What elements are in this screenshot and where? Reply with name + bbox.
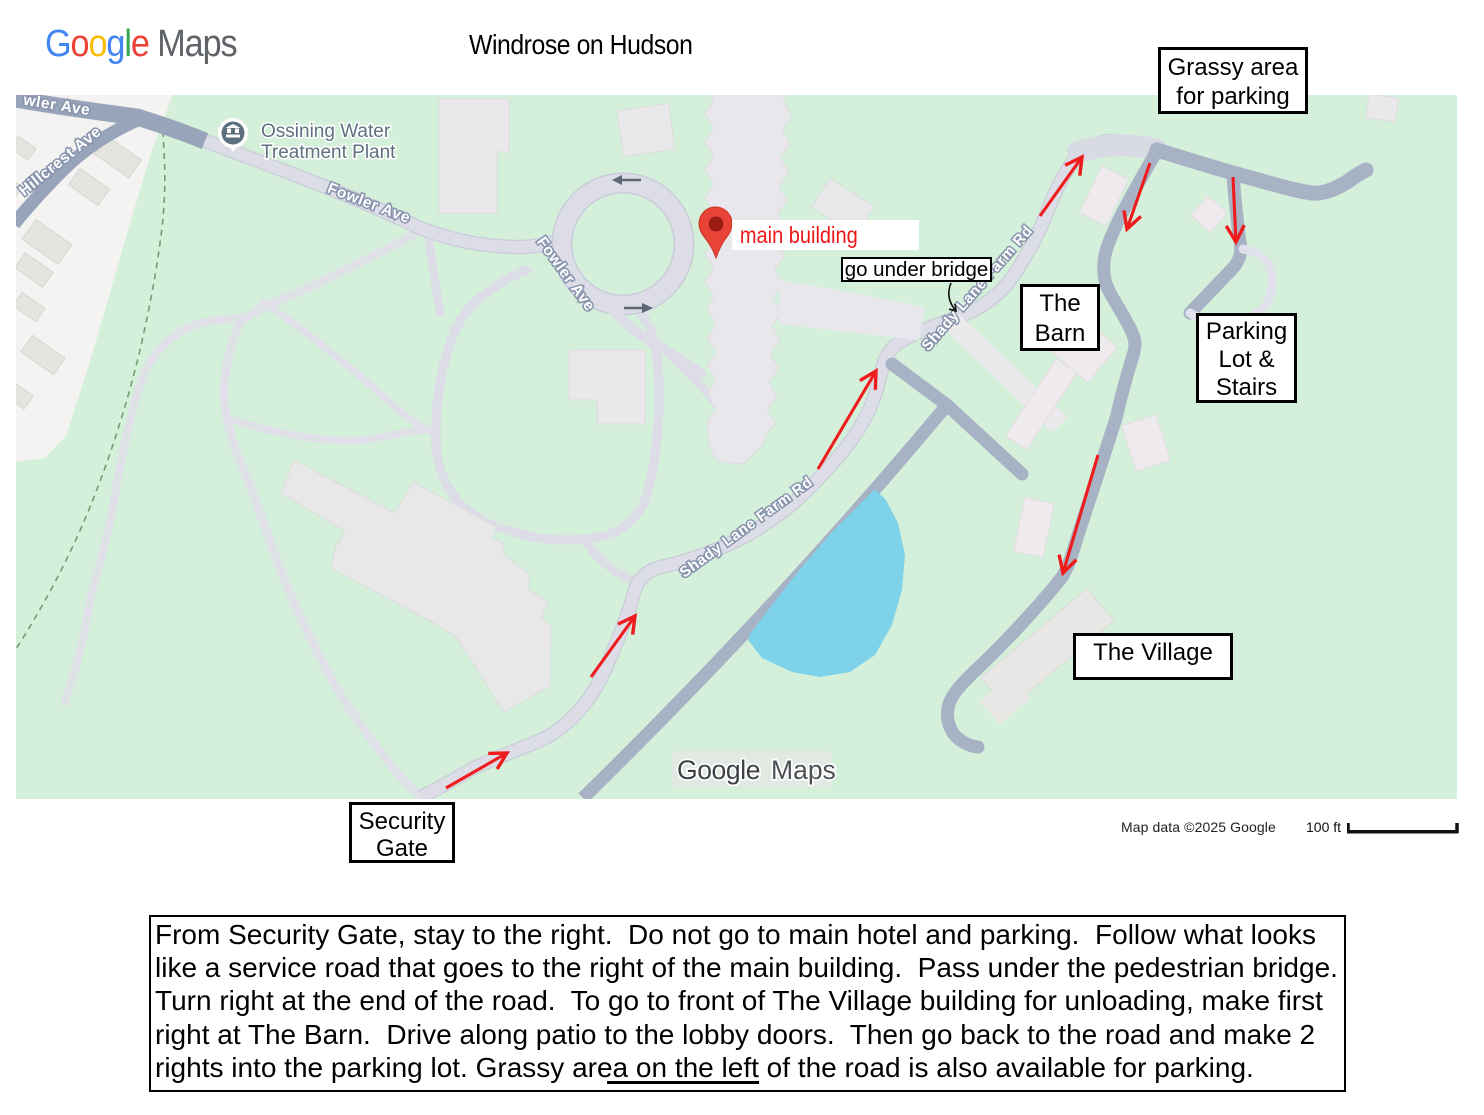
svg-text:Treatment Plant: Treatment Plant — [261, 142, 396, 163]
svg-text:Google: Google — [677, 755, 760, 785]
svg-text:Ossining Water: Ossining Water — [261, 121, 391, 142]
svg-text:Maps: Maps — [771, 755, 836, 785]
